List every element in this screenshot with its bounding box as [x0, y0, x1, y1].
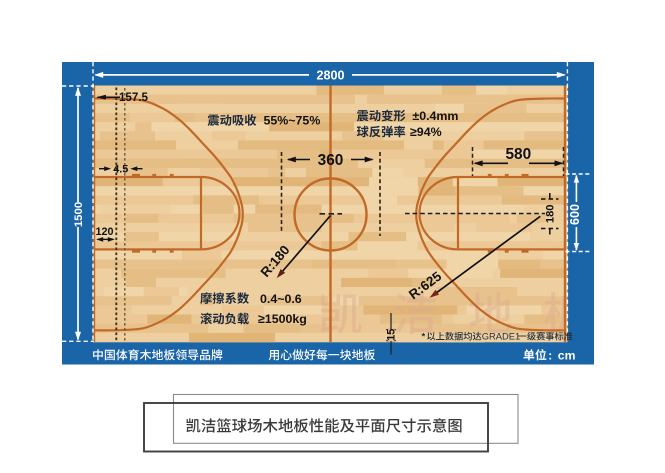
svg-text:4.5: 4.5	[113, 163, 128, 175]
svg-text:0.4~0.6: 0.4~0.6	[260, 292, 302, 306]
svg-text:≥1500kg: ≥1500kg	[258, 312, 307, 326]
svg-text:180: 180	[544, 204, 556, 223]
svg-text:*: *	[422, 332, 426, 343]
svg-text:2800: 2800	[316, 68, 344, 82]
svg-text:±0.4mm: ±0.4mm	[412, 109, 458, 123]
svg-text:≥94%: ≥94%	[410, 125, 442, 139]
svg-text:580: 580	[505, 146, 531, 163]
svg-text:1500: 1500	[73, 202, 85, 227]
svg-text:157.5: 157.5	[119, 91, 149, 104]
svg-text:15: 15	[386, 329, 398, 341]
svg-text::: :	[548, 348, 552, 362]
svg-text:360: 360	[318, 152, 344, 169]
svg-text:GRADE1: GRADE1	[482, 331, 521, 342]
svg-text:55%~75%: 55%~75%	[264, 114, 321, 128]
svg-text:120: 120	[95, 226, 113, 238]
svg-text:cm: cm	[558, 348, 576, 362]
svg-text:600: 600	[568, 204, 582, 225]
